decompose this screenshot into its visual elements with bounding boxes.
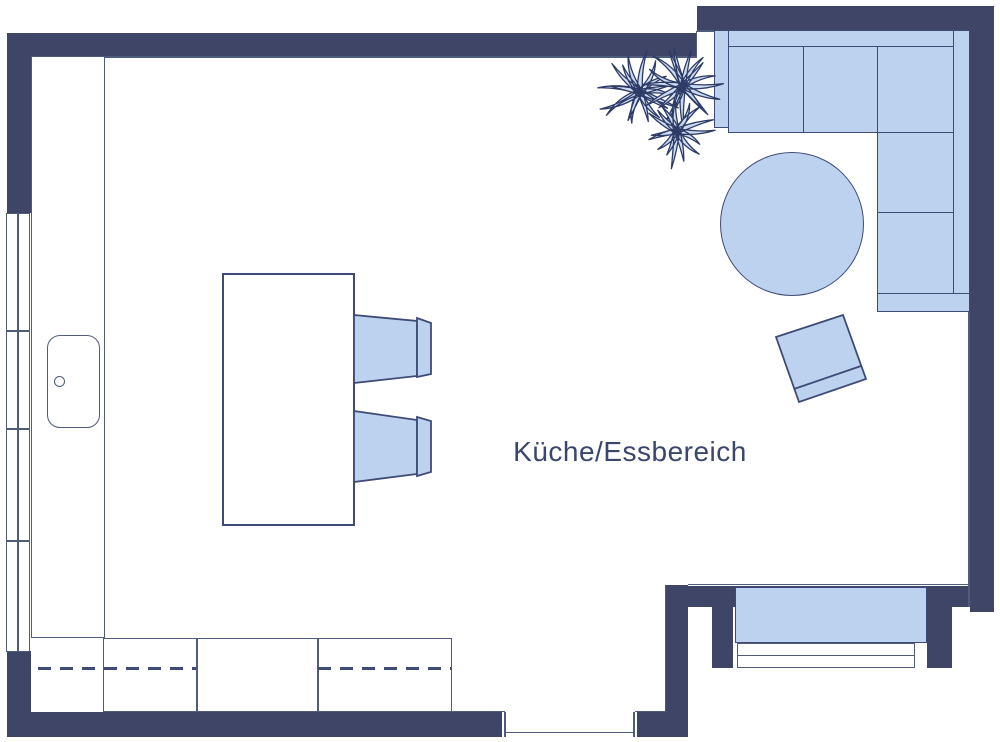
plant-icon[interactable] bbox=[649, 102, 715, 169]
sofa-armrest-left[interactable] bbox=[714, 30, 729, 128]
round-coffee-table[interactable] bbox=[720, 152, 864, 296]
room-outline-step bbox=[696, 31, 698, 57]
sofa-armrest-bottom[interactable] bbox=[877, 293, 970, 312]
room-outline-bottom-a bbox=[452, 711, 505, 713]
dining-chair-seat[interactable] bbox=[354, 411, 417, 482]
kitchen-sink[interactable] bbox=[47, 335, 100, 428]
sofa-seat-cushion[interactable] bbox=[728, 46, 804, 133]
wall-right bbox=[970, 6, 994, 612]
room-outline-bottom-right bbox=[688, 584, 970, 586]
window-bottom-divider bbox=[738, 655, 914, 657]
plant-icon[interactable] bbox=[643, 48, 724, 130]
wall-left-upper bbox=[7, 33, 31, 213]
window-left-divider bbox=[7, 330, 29, 332]
room-outline-column bbox=[665, 585, 667, 712]
window-left-mullion bbox=[17, 214, 19, 651]
kitchen-island-table[interactable] bbox=[222, 273, 355, 526]
plants-group[interactable] bbox=[598, 48, 724, 169]
dining-chair-backrest[interactable] bbox=[417, 318, 431, 377]
ottoman-chair[interactable] bbox=[776, 315, 866, 402]
door-threshold bbox=[506, 732, 633, 734]
room-outline-top bbox=[105, 56, 697, 58]
overhead-cabinet-dashed-line bbox=[38, 667, 196, 670]
wall-top-right bbox=[697, 6, 994, 31]
window-left-divider bbox=[7, 428, 29, 430]
sink-drain bbox=[54, 376, 65, 387]
sofa-backrest-top[interactable] bbox=[714, 30, 970, 47]
door-jamb-right bbox=[633, 712, 635, 737]
dining-chair-seat[interactable] bbox=[354, 315, 417, 383]
counter-divider bbox=[317, 639, 319, 711]
wall-column bbox=[666, 585, 688, 737]
window-bench[interactable] bbox=[735, 587, 927, 643]
plant-icon[interactable] bbox=[598, 50, 678, 123]
wall-bottom-left bbox=[7, 712, 502, 737]
kitchen-counter-bottom[interactable] bbox=[103, 638, 452, 712]
window-left-divider bbox=[7, 540, 29, 542]
sofa-seat-cushion[interactable] bbox=[803, 46, 879, 133]
counter-divider bbox=[196, 639, 198, 711]
room-label: Küche/Essbereich bbox=[513, 436, 747, 468]
sofa-seat-cushion[interactable] bbox=[877, 212, 954, 294]
sofa-seat-cushion[interactable] bbox=[877, 132, 954, 214]
ottoman-seat-line bbox=[794, 366, 861, 389]
sofa-backrest-right[interactable] bbox=[953, 30, 970, 311]
window-bottom bbox=[737, 643, 915, 668]
wall-window-jamb-left bbox=[712, 607, 733, 668]
window-left bbox=[6, 213, 30, 652]
wall-window-jamb-right bbox=[927, 586, 952, 668]
sofa-corner-cushion[interactable] bbox=[877, 46, 954, 133]
room-outline-bottom-b bbox=[635, 711, 666, 713]
overhead-cabinet-dashed-line bbox=[318, 667, 452, 670]
floor-plan: Küche/Essbereich bbox=[0, 0, 1000, 742]
dining-chair-backrest[interactable] bbox=[417, 417, 431, 476]
wall-top-left bbox=[7, 33, 697, 57]
